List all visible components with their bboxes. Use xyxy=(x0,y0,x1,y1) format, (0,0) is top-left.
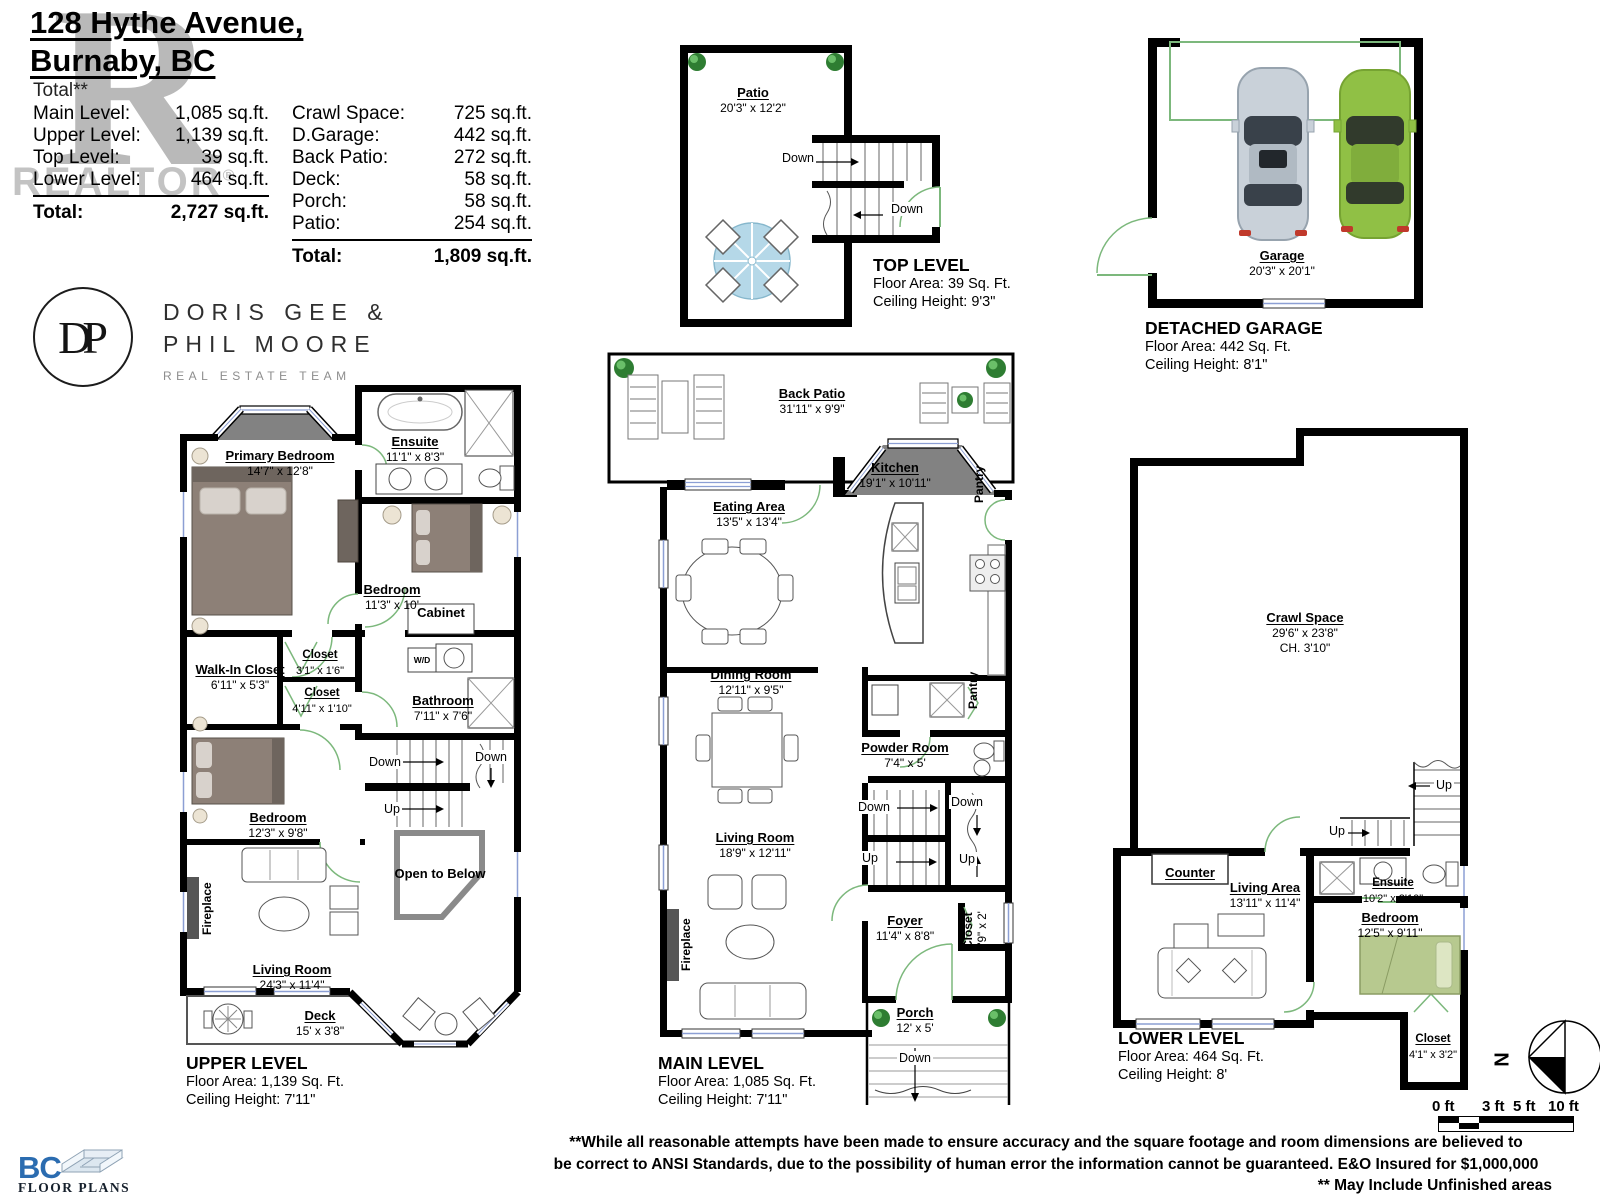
room-name: Counter xyxy=(1165,865,1215,881)
stair-label-down: Down xyxy=(856,800,892,814)
room-label-closet: Closet4'11" x 1'10" xyxy=(292,686,352,717)
total-label: Total: xyxy=(292,246,342,268)
room-dims: 19'1" x 10'11" xyxy=(859,476,931,492)
row-label: D.Garage: xyxy=(292,125,380,147)
compass-north-label: N xyxy=(1492,1052,1515,1066)
label-pantry: Pantry xyxy=(972,462,986,506)
room-name: Eating Area xyxy=(713,499,785,515)
room-dims: 24'3" x 11'4" xyxy=(253,978,332,994)
room-dims: 11'1" x 8'3" xyxy=(386,450,444,466)
row-value: 254 sq.ft. xyxy=(454,213,532,235)
lower-level-plan-graphic xyxy=(1100,418,1580,1090)
caption-area: Floor Area: 464 Sq. Ft. xyxy=(1118,1049,1264,1067)
row-value: 272 sq.ft. xyxy=(454,147,532,169)
room-dims: 13'5" x 13'4" xyxy=(713,515,785,531)
caption-ceiling: Ceiling Height: 7'11" xyxy=(658,1092,816,1110)
stair-label-down: Down xyxy=(889,202,925,216)
room-label-primary-bedroom: Primary Bedroom14'7" x 12'8" xyxy=(225,448,334,479)
caption-title: DETACHED GARAGE xyxy=(1145,318,1323,339)
garage-caption: DETACHED GARAGE Floor Area: 442 Sq. Ft. … xyxy=(1145,318,1323,375)
total-label: Total: xyxy=(33,202,83,224)
room-label-living-area: Living Area13'11" x 11'4" xyxy=(1230,880,1301,911)
scale-bar-graphic xyxy=(1438,1116,1574,1132)
dp-monogram-logo: DP xyxy=(33,287,133,387)
disclaimer-line-1: **While all reasonable attempts have bee… xyxy=(540,1132,1552,1154)
floor-plan-sheet: R REALTOR® 128 Hythe Avenue, Burnaby, BC… xyxy=(0,0,1600,1200)
row-label: Back Patio: xyxy=(292,147,388,169)
scale-label-3: 3 ft xyxy=(1482,1098,1505,1115)
room-label-bathroom: Bathroom7'11" x 7'6" xyxy=(412,693,473,724)
room-dims: 20'3" x 12'2" xyxy=(720,101,786,117)
row-value: 58 sq.ft. xyxy=(464,191,532,213)
room-label-closet: Closet3'1" x 1'6" xyxy=(296,648,344,679)
row-value: 442 sq.ft. xyxy=(454,125,532,147)
room-name: Walk-In Closet xyxy=(195,662,284,678)
room-label-bedroom: Bedroom12'3" x 9'8" xyxy=(248,810,307,841)
upper-level-plan-graphic xyxy=(180,372,548,1112)
room-label-patio: Patio20'3" x 12'2" xyxy=(720,85,786,116)
row-value: 58 sq.ft. xyxy=(464,169,532,191)
table-row: Crawl Space:725 sq.ft. xyxy=(292,103,532,125)
room-name: Living Area xyxy=(1230,880,1301,896)
stair-label-down: Down xyxy=(367,755,403,769)
table-total-row: Total:2,727 sq.ft. xyxy=(33,195,269,224)
main-level-caption: MAIN LEVEL Floor Area: 1,085 Sq. Ft. Cei… xyxy=(658,1053,816,1110)
room-label-wd: W/D xyxy=(414,655,431,665)
room-label-dining-room: Dining Room12'11" x 9'5" xyxy=(711,667,792,698)
room-dims: 14'7" x 12'8" xyxy=(225,464,334,480)
scale-label-0: 0 ft xyxy=(1432,1098,1455,1115)
room-dims: 7'11" x 7'6" xyxy=(412,709,473,725)
row-label: Deck: xyxy=(292,169,341,191)
upper-level-caption: UPPER LEVEL Floor Area: 1,139 Sq. Ft. Ce… xyxy=(186,1053,344,1110)
table-row: D.Garage:442 sq.ft. xyxy=(292,125,532,147)
top-level-caption: TOP LEVEL Floor Area: 39 Sq. Ft. Ceiling… xyxy=(873,255,1011,312)
room-label-foyer: Foyer11'4" x 8'8" xyxy=(876,913,934,944)
total-value: 2,727 sq.ft. xyxy=(171,202,269,224)
room-dims: 4'1" x 3'2" xyxy=(1409,1048,1457,1064)
row-label: Main Level: xyxy=(33,103,130,125)
room-name: Bedroom xyxy=(1358,910,1423,926)
floor-plans-logo-text: FLOOR PLANS xyxy=(18,1180,130,1196)
table-row: Top Level:39 sq.ft. xyxy=(33,147,269,169)
room-dims: 3'1" x 1'6" xyxy=(296,664,344,680)
room-label-ensuite: Ensuite10'2" x 2'10" xyxy=(1363,876,1423,907)
lower-level-caption: LOWER LEVEL Floor Area: 464 Sq. Ft. Ceil… xyxy=(1118,1028,1264,1085)
room-dims: 20'3" x 20'1" xyxy=(1249,264,1315,280)
table-row: Lower Level:464 sq.ft. xyxy=(33,169,269,191)
main-level-plan-graphic xyxy=(600,345,1020,1115)
stair-label-up: Up xyxy=(957,852,977,866)
stair-label-down: Down xyxy=(897,1051,933,1065)
room-dims: 11'4" x 8'8" xyxy=(876,929,934,945)
table-row: Main Level:1,085 sq.ft. xyxy=(33,103,269,125)
caption-ceiling: Ceiling Height: 8' xyxy=(1118,1067,1264,1085)
label-fireplace: Fireplace xyxy=(200,876,214,942)
caption-title: UPPER LEVEL xyxy=(186,1053,344,1074)
caption-area: Floor Area: 1,139 Sq. Ft. xyxy=(186,1074,344,1092)
table-row: Upper Level:1,139 sq.ft. xyxy=(33,125,269,147)
room-name: Open to Below xyxy=(395,866,486,882)
room-label-porch: Porch12' x 5' xyxy=(896,1005,933,1036)
total-note: Total** xyxy=(33,80,88,102)
table-row: Back Patio:272 sq.ft. xyxy=(292,147,532,169)
room-label-cabinet: Cabinet xyxy=(417,605,465,621)
room-ceiling-height: CH. 3'10" xyxy=(1266,641,1343,657)
room-name: Closet xyxy=(296,648,344,664)
table-row: Deck:58 sq.ft. xyxy=(292,169,532,191)
room-name: Bedroom xyxy=(363,582,420,598)
disclaimer-block: **While all reasonable attempts have bee… xyxy=(540,1132,1552,1197)
room-dims: 6'11" x 5'3" xyxy=(195,678,284,694)
outdoor-area-table: Crawl Space:725 sq.ft. D.Garage:442 sq.f… xyxy=(292,103,532,268)
caption-ceiling: Ceiling Height: 7'11" xyxy=(186,1092,344,1110)
row-label: Crawl Space: xyxy=(292,103,405,125)
scale-bar-row xyxy=(1439,1123,1573,1129)
room-label-crawl-space: Crawl Space29'6" x 23'8"CH. 3'10" xyxy=(1266,610,1343,657)
room-dims: 12'11" x 9'5" xyxy=(711,683,792,699)
row-label: Top Level: xyxy=(33,147,120,169)
room-dims: 12'3" x 9'8" xyxy=(248,826,307,842)
caption-area: Floor Area: 39 Sq. Ft. xyxy=(873,276,1011,294)
caption-ceiling: Ceiling Height: 8'1" xyxy=(1145,357,1323,375)
stair-label-up: Up xyxy=(860,851,880,865)
table-row: Porch:58 sq.ft. xyxy=(292,191,532,213)
row-value: 725 sq.ft. xyxy=(454,103,532,125)
stair-label-up: Up xyxy=(382,802,402,816)
room-name: Ensuite xyxy=(386,434,444,450)
bc-logo-iso-graphic xyxy=(56,1134,128,1184)
room-dims: 29'6" x 23'8" xyxy=(1266,626,1343,642)
room-dims: 13'11" x 11'4" xyxy=(1230,896,1301,912)
room-name: Ensuite xyxy=(1363,876,1423,892)
room-name: Primary Bedroom xyxy=(225,448,334,464)
stair-label-up: Up xyxy=(1327,824,1347,838)
room-label-bedroom: Bedroom11'3" x 10' xyxy=(363,582,420,613)
room-label-garage: Garage20'3" x 20'1" xyxy=(1249,248,1315,279)
monogram-letters: DP xyxy=(58,311,108,364)
disclaimer-line-3: ** May Include Unfinished areas xyxy=(540,1175,1552,1197)
label-fireplace: Fireplace xyxy=(679,908,693,982)
room-dims: 18'9" x 12'11" xyxy=(716,846,795,862)
room-label-living-room: Living Room18'9" x 12'11" xyxy=(716,830,795,861)
label-closet: Closet xyxy=(961,900,975,962)
row-value: 1,139 sq.ft. xyxy=(175,125,269,147)
levels-area-table: Main Level:1,085 sq.ft. Upper Level:1,13… xyxy=(33,103,269,224)
team-name-block: DORIS GEE & PHIL MOORE REAL ESTATE TEAM xyxy=(163,296,390,383)
property-address: 128 Hythe Avenue, Burnaby, BC xyxy=(30,4,303,80)
room-label-back-patio: Back Patio31'11" x 9'9" xyxy=(779,386,845,417)
room-label-counter: Counter xyxy=(1165,865,1215,881)
room-label-powder-room: Powder Room7'4" x 5' xyxy=(861,740,948,771)
room-label-living-room: Living Room24'3" x 11'4" xyxy=(253,962,332,993)
room-name: Closet xyxy=(1409,1032,1457,1048)
stair-label-down: Down xyxy=(780,151,816,165)
room-dims: 10'2" x 2'10" xyxy=(1363,892,1423,908)
team-line-2: PHIL MOORE xyxy=(163,328,390,360)
car-silver xyxy=(1232,68,1314,240)
room-dims: 11'3" x 10' xyxy=(363,598,420,614)
room-dims: 7'4" x 5' xyxy=(861,756,948,772)
label-pantry: Pantry xyxy=(966,668,980,712)
room-name: Living Room xyxy=(253,962,332,978)
row-label: Upper Level: xyxy=(33,125,141,147)
caption-title: MAIN LEVEL xyxy=(658,1053,816,1074)
caption-title: TOP LEVEL xyxy=(873,255,1011,276)
room-name: Patio xyxy=(720,85,786,101)
room-name: Foyer xyxy=(876,913,934,929)
address-line-1: 128 Hythe Avenue, xyxy=(30,4,303,42)
room-name: Kitchen xyxy=(859,460,931,476)
label-open-to-below: Open to Below xyxy=(395,866,486,882)
row-label: Porch: xyxy=(292,191,347,213)
stair-label-down: Down xyxy=(473,750,509,764)
row-label: Patio: xyxy=(292,213,341,235)
room-label-kitchen: Kitchen19'1" x 10'11" xyxy=(859,460,931,491)
team-line-1: DORIS GEE & xyxy=(163,296,390,328)
row-value: 39 sq.ft. xyxy=(201,147,269,169)
room-name: Bedroom xyxy=(248,810,307,826)
garage-plan-graphic xyxy=(1078,28,1443,358)
room-dims: 12' x 5' xyxy=(896,1021,933,1037)
caption-area: Floor Area: 442 Sq. Ft. xyxy=(1145,339,1323,357)
room-label-bedroom: Bedroom12'5" x 9'11" xyxy=(1358,910,1423,941)
room-label-walkin-closet: Walk-In Closet6'11" x 5'3" xyxy=(195,662,284,693)
room-name: Dining Room xyxy=(711,667,792,683)
row-label: Lower Level: xyxy=(33,169,141,191)
table-total-row: Total:1,809 sq.ft. xyxy=(292,239,532,268)
stair-label-up: Up xyxy=(1434,778,1454,792)
scale-label-5: 5 ft xyxy=(1513,1098,1536,1115)
caption-ceiling: Ceiling Height: 9'3" xyxy=(873,294,1011,312)
row-value: 464 sq.ft. xyxy=(191,169,269,191)
car-green xyxy=(1334,70,1416,238)
caption-area: Floor Area: 1,085 Sq. Ft. xyxy=(658,1074,816,1092)
room-dims: 31'11" x 9'9" xyxy=(779,402,845,418)
label-closet-dims: 5'9" x 2' xyxy=(977,898,989,964)
total-value: 1,809 sq.ft. xyxy=(434,246,532,268)
room-name: Crawl Space xyxy=(1266,610,1343,626)
row-value: 1,085 sq.ft. xyxy=(175,103,269,125)
room-label-eating-area: Eating Area13'5" x 13'4" xyxy=(713,499,785,530)
room-name: Living Room xyxy=(716,830,795,846)
room-name: Closet xyxy=(292,686,352,702)
address-line-2: Burnaby, BC xyxy=(30,42,303,80)
room-label-closet: Closet4'1" x 3'2" xyxy=(1409,1032,1457,1063)
compass-icon xyxy=(1505,1015,1600,1100)
scale-label-10: 10 ft xyxy=(1548,1098,1579,1115)
room-name: Back Patio xyxy=(779,386,845,402)
room-name: Bathroom xyxy=(412,693,473,709)
room-dims: 12'5" x 9'11" xyxy=(1358,926,1423,942)
stair-label-down: Down xyxy=(949,795,985,809)
room-dims: 4'11" x 1'10" xyxy=(292,702,352,718)
room-label-deck: Deck15' x 3'8" xyxy=(296,1008,344,1039)
room-name: Cabinet xyxy=(417,605,465,621)
table-row: Patio:254 sq.ft. xyxy=(292,213,532,235)
room-name: Garage xyxy=(1249,248,1315,264)
disclaimer-line-2: be correct to ANSI Standards, due to the… xyxy=(540,1154,1552,1176)
room-name: Porch xyxy=(896,1005,933,1021)
room-dims: 15' x 3'8" xyxy=(296,1024,344,1040)
room-name: Deck xyxy=(296,1008,344,1024)
room-name: Powder Room xyxy=(861,740,948,756)
team-subtitle: REAL ESTATE TEAM xyxy=(163,369,390,383)
caption-title: LOWER LEVEL xyxy=(1118,1028,1264,1049)
room-label-ensuite: Ensuite11'1" x 8'3" xyxy=(386,434,444,465)
